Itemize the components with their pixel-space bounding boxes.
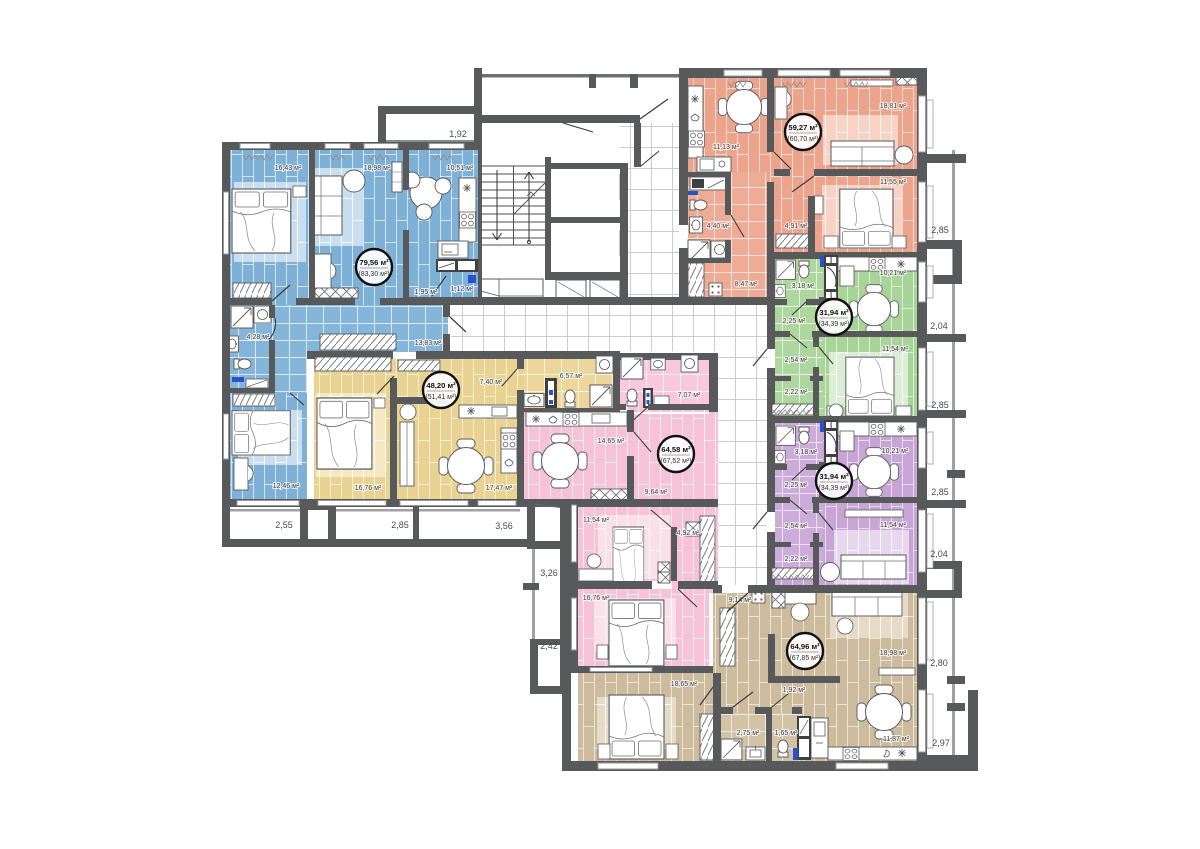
svg-text:59,27 м²: 59,27 м² bbox=[788, 123, 818, 132]
svg-text:18,65 м²: 18,65 м² bbox=[671, 681, 698, 688]
svg-text:64,58 м²: 64,58 м² bbox=[661, 445, 691, 454]
svg-text:11,55 м²: 11,55 м² bbox=[880, 179, 907, 186]
svg-text:10,21 м²: 10,21 м² bbox=[880, 270, 907, 277]
svg-text:18,98 м²: 18,98 м² bbox=[880, 650, 907, 657]
svg-text:11,87 м²: 11,87 м² bbox=[883, 736, 910, 743]
svg-text:2,75 м²: 2,75 м² bbox=[737, 730, 760, 737]
svg-text:2,55: 2,55 bbox=[275, 520, 293, 530]
svg-text:2,85: 2,85 bbox=[391, 520, 409, 530]
svg-text:11,54 м²: 11,54 м² bbox=[882, 346, 909, 353]
svg-text:10,21 м²: 10,21 м² bbox=[882, 448, 909, 455]
svg-text:10,51 м²: 10,51 м² bbox=[447, 165, 474, 172]
svg-text:3,26: 3,26 bbox=[540, 568, 558, 578]
svg-text:2,42: 2,42 bbox=[540, 641, 558, 651]
svg-text:(34,39 м²): (34,39 м²) bbox=[818, 321, 849, 328]
svg-text:13,83 м²: 13,83 м² bbox=[415, 340, 442, 347]
svg-text:11,54 м²: 11,54 м² bbox=[583, 517, 610, 524]
svg-text:(60,70 м²): (60,70 м²) bbox=[787, 136, 818, 143]
svg-text:2,85: 2,85 bbox=[931, 400, 949, 410]
svg-text:31,94 м²: 31,94 м² bbox=[819, 472, 849, 481]
svg-text:2,25 м²: 2,25 м² bbox=[785, 482, 808, 489]
svg-text:(51,41 м²): (51,41 м²) bbox=[425, 394, 456, 401]
svg-text:2,85: 2,85 bbox=[931, 487, 949, 497]
svg-text:2,04: 2,04 bbox=[930, 321, 948, 331]
svg-text:16,76 м²: 16,76 м² bbox=[583, 595, 610, 602]
svg-text:7,07 м²: 7,07 м² bbox=[678, 392, 701, 399]
svg-text:17,47 м²: 17,47 м² bbox=[486, 485, 513, 492]
svg-text:3,56: 3,56 bbox=[495, 521, 513, 531]
svg-text:2,25 м²: 2,25 м² bbox=[783, 318, 806, 325]
svg-text:18,98 м²: 18,98 м² bbox=[364, 165, 391, 172]
svg-text:16,43 м²: 16,43 м² bbox=[275, 165, 302, 172]
svg-text:(34,39 м²): (34,39 м²) bbox=[818, 485, 849, 492]
svg-text:31,94 м²: 31,94 м² bbox=[819, 308, 849, 317]
svg-text:2,54 м²: 2,54 м² bbox=[785, 357, 808, 364]
svg-text:18,81 м²: 18,81 м² bbox=[880, 103, 907, 110]
svg-text:2,22 м²: 2,22 м² bbox=[785, 556, 808, 563]
svg-text:64,96 м²: 64,96 м² bbox=[790, 642, 820, 651]
svg-text:11,13 м²: 11,13 м² bbox=[713, 144, 740, 151]
svg-text:2,22 м²: 2,22 м² bbox=[785, 389, 808, 396]
svg-text:4,28 м²: 4,28 м² bbox=[247, 334, 270, 341]
svg-text:(67,52 м²): (67,52 м²) bbox=[660, 458, 691, 465]
svg-text:1,92: 1,92 bbox=[449, 129, 467, 139]
svg-text:8,47 м²: 8,47 м² bbox=[735, 281, 758, 288]
svg-text:16,76 м²: 16,76 м² bbox=[355, 485, 382, 492]
svg-text:79,56 м²: 79,56 м² bbox=[359, 258, 389, 267]
svg-text:3,18 м²: 3,18 м² bbox=[792, 283, 815, 290]
svg-text:1,12 м²: 1,12 м² bbox=[451, 286, 474, 293]
svg-text:3,18 м²: 3,18 м² bbox=[795, 449, 818, 456]
svg-text:4,92 м²: 4,92 м² bbox=[677, 530, 700, 537]
svg-text:2,85: 2,85 bbox=[931, 225, 949, 235]
svg-text:14,65 м²: 14,65 м² bbox=[598, 438, 625, 445]
svg-text:7,40 м²: 7,40 м² bbox=[480, 379, 503, 386]
svg-text:2,80: 2,80 bbox=[930, 658, 948, 668]
svg-text:1,65 м²: 1,65 м² bbox=[775, 730, 798, 737]
svg-text:(83,30 м²): (83,30 м²) bbox=[358, 271, 389, 278]
svg-text:48,20 м²: 48,20 м² bbox=[426, 381, 456, 390]
svg-text:1,95 м²: 1,95 м² bbox=[415, 289, 438, 296]
svg-text:12,46 м²: 12,46 м² bbox=[273, 483, 300, 490]
svg-text:2,97: 2,97 bbox=[932, 738, 950, 748]
svg-text:2,04: 2,04 bbox=[930, 549, 948, 559]
svg-text:2,54 м²: 2,54 м² bbox=[785, 523, 808, 530]
svg-text:1,92 м²: 1,92 м² bbox=[783, 687, 806, 694]
svg-text:9,64 м²: 9,64 м² bbox=[645, 489, 668, 496]
svg-text:4,40 м²: 4,40 м² bbox=[707, 223, 730, 230]
svg-text:(67,85 м²): (67,85 м²) bbox=[789, 655, 820, 662]
svg-text:11,54 м²: 11,54 м² bbox=[880, 522, 907, 529]
svg-text:4,91 м²: 4,91 м² bbox=[785, 223, 808, 230]
svg-text:6,57 м²: 6,57 м² bbox=[560, 373, 583, 380]
